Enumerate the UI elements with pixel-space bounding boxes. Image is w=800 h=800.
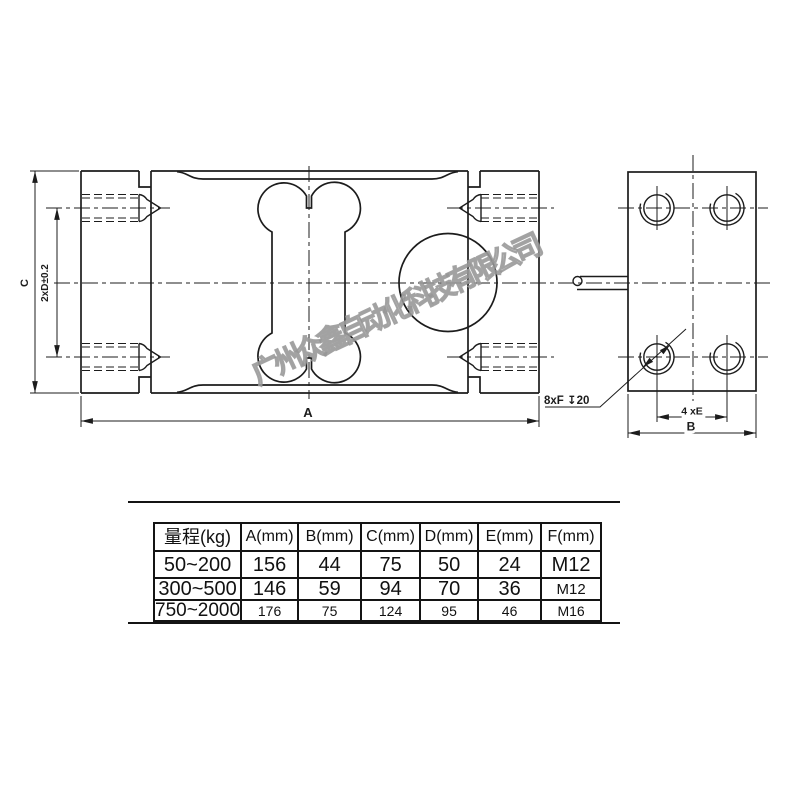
- cell-f: M12: [541, 578, 601, 600]
- cell-b: 59: [298, 578, 361, 600]
- col-header-a: A(mm): [241, 523, 298, 551]
- col-header-d: D(mm): [420, 523, 478, 551]
- spec-table: 量程(kg) A(mm) B(mm) C(mm) D(mm) E(mm) F(m…: [153, 522, 602, 622]
- center-lines: [46, 166, 772, 399]
- table-row: 50~200 156 44 75 50 24 M12: [154, 551, 601, 578]
- cell-range: 750~2000: [154, 600, 241, 621]
- cell-d: 70: [420, 578, 478, 600]
- cell-f: M16: [541, 600, 601, 621]
- thread-callout-label: 8xF ↧20: [544, 395, 589, 407]
- side-view: [573, 155, 768, 401]
- cell-a: 146: [241, 578, 298, 600]
- cell-c: 75: [361, 551, 420, 578]
- cell-d: 50: [420, 551, 478, 578]
- dim-label-a: A: [303, 405, 313, 420]
- cell-d: 95: [420, 600, 478, 621]
- col-header-e: E(mm): [478, 523, 541, 551]
- body-outline: [81, 171, 539, 393]
- table-row: 750~2000 176 75 124 95 46 M16: [154, 600, 601, 621]
- side-plate-outline: [628, 172, 756, 391]
- dim-label-4xe: 4 xE: [681, 406, 703, 418]
- cell-c: 124: [361, 600, 420, 621]
- col-header-c: C(mm): [361, 523, 420, 551]
- cell-e: 24: [478, 551, 541, 578]
- dim-c: [30, 171, 79, 393]
- side-center-lines: [618, 155, 768, 401]
- cell-b: 75: [298, 600, 361, 621]
- cell-f: M12: [541, 551, 601, 578]
- table-header-row: 量程(kg) A(mm) B(mm) C(mm) D(mm) E(mm) F(m…: [154, 523, 601, 551]
- cell-e: 36: [478, 578, 541, 600]
- cell-e: 46: [478, 600, 541, 621]
- front-view: [46, 166, 772, 399]
- drawing-canvas: A C 2xD±0.2 4 xE B 8xF ↧20: [0, 0, 800, 800]
- cell-a: 176: [241, 600, 298, 621]
- cell-range: 50~200: [154, 551, 241, 578]
- table-top-rule: [128, 501, 620, 503]
- engineering-drawing-page: 广州众鑫自动化科技有限公司: [0, 0, 800, 800]
- cell-range: 300~500: [154, 578, 241, 600]
- col-header-f: F(mm): [541, 523, 601, 551]
- table-row: 300~500 146 59 94 70 36 M12: [154, 578, 601, 600]
- mounting-holes: [640, 193, 744, 374]
- dim-label-2xd: 2xD±0.2: [40, 264, 51, 302]
- dim-label-c: C: [19, 279, 31, 287]
- cell-b: 44: [298, 551, 361, 578]
- col-header-range: 量程(kg): [154, 523, 241, 551]
- thread-hole-top-left: [82, 195, 161, 222]
- thread-hole-bottom-left: [82, 344, 161, 371]
- dim-label-b: B: [687, 420, 696, 434]
- table-bottom-rule: [128, 622, 620, 624]
- cell-c: 94: [361, 578, 420, 600]
- cell-a: 156: [241, 551, 298, 578]
- col-header-b: B(mm): [298, 523, 361, 551]
